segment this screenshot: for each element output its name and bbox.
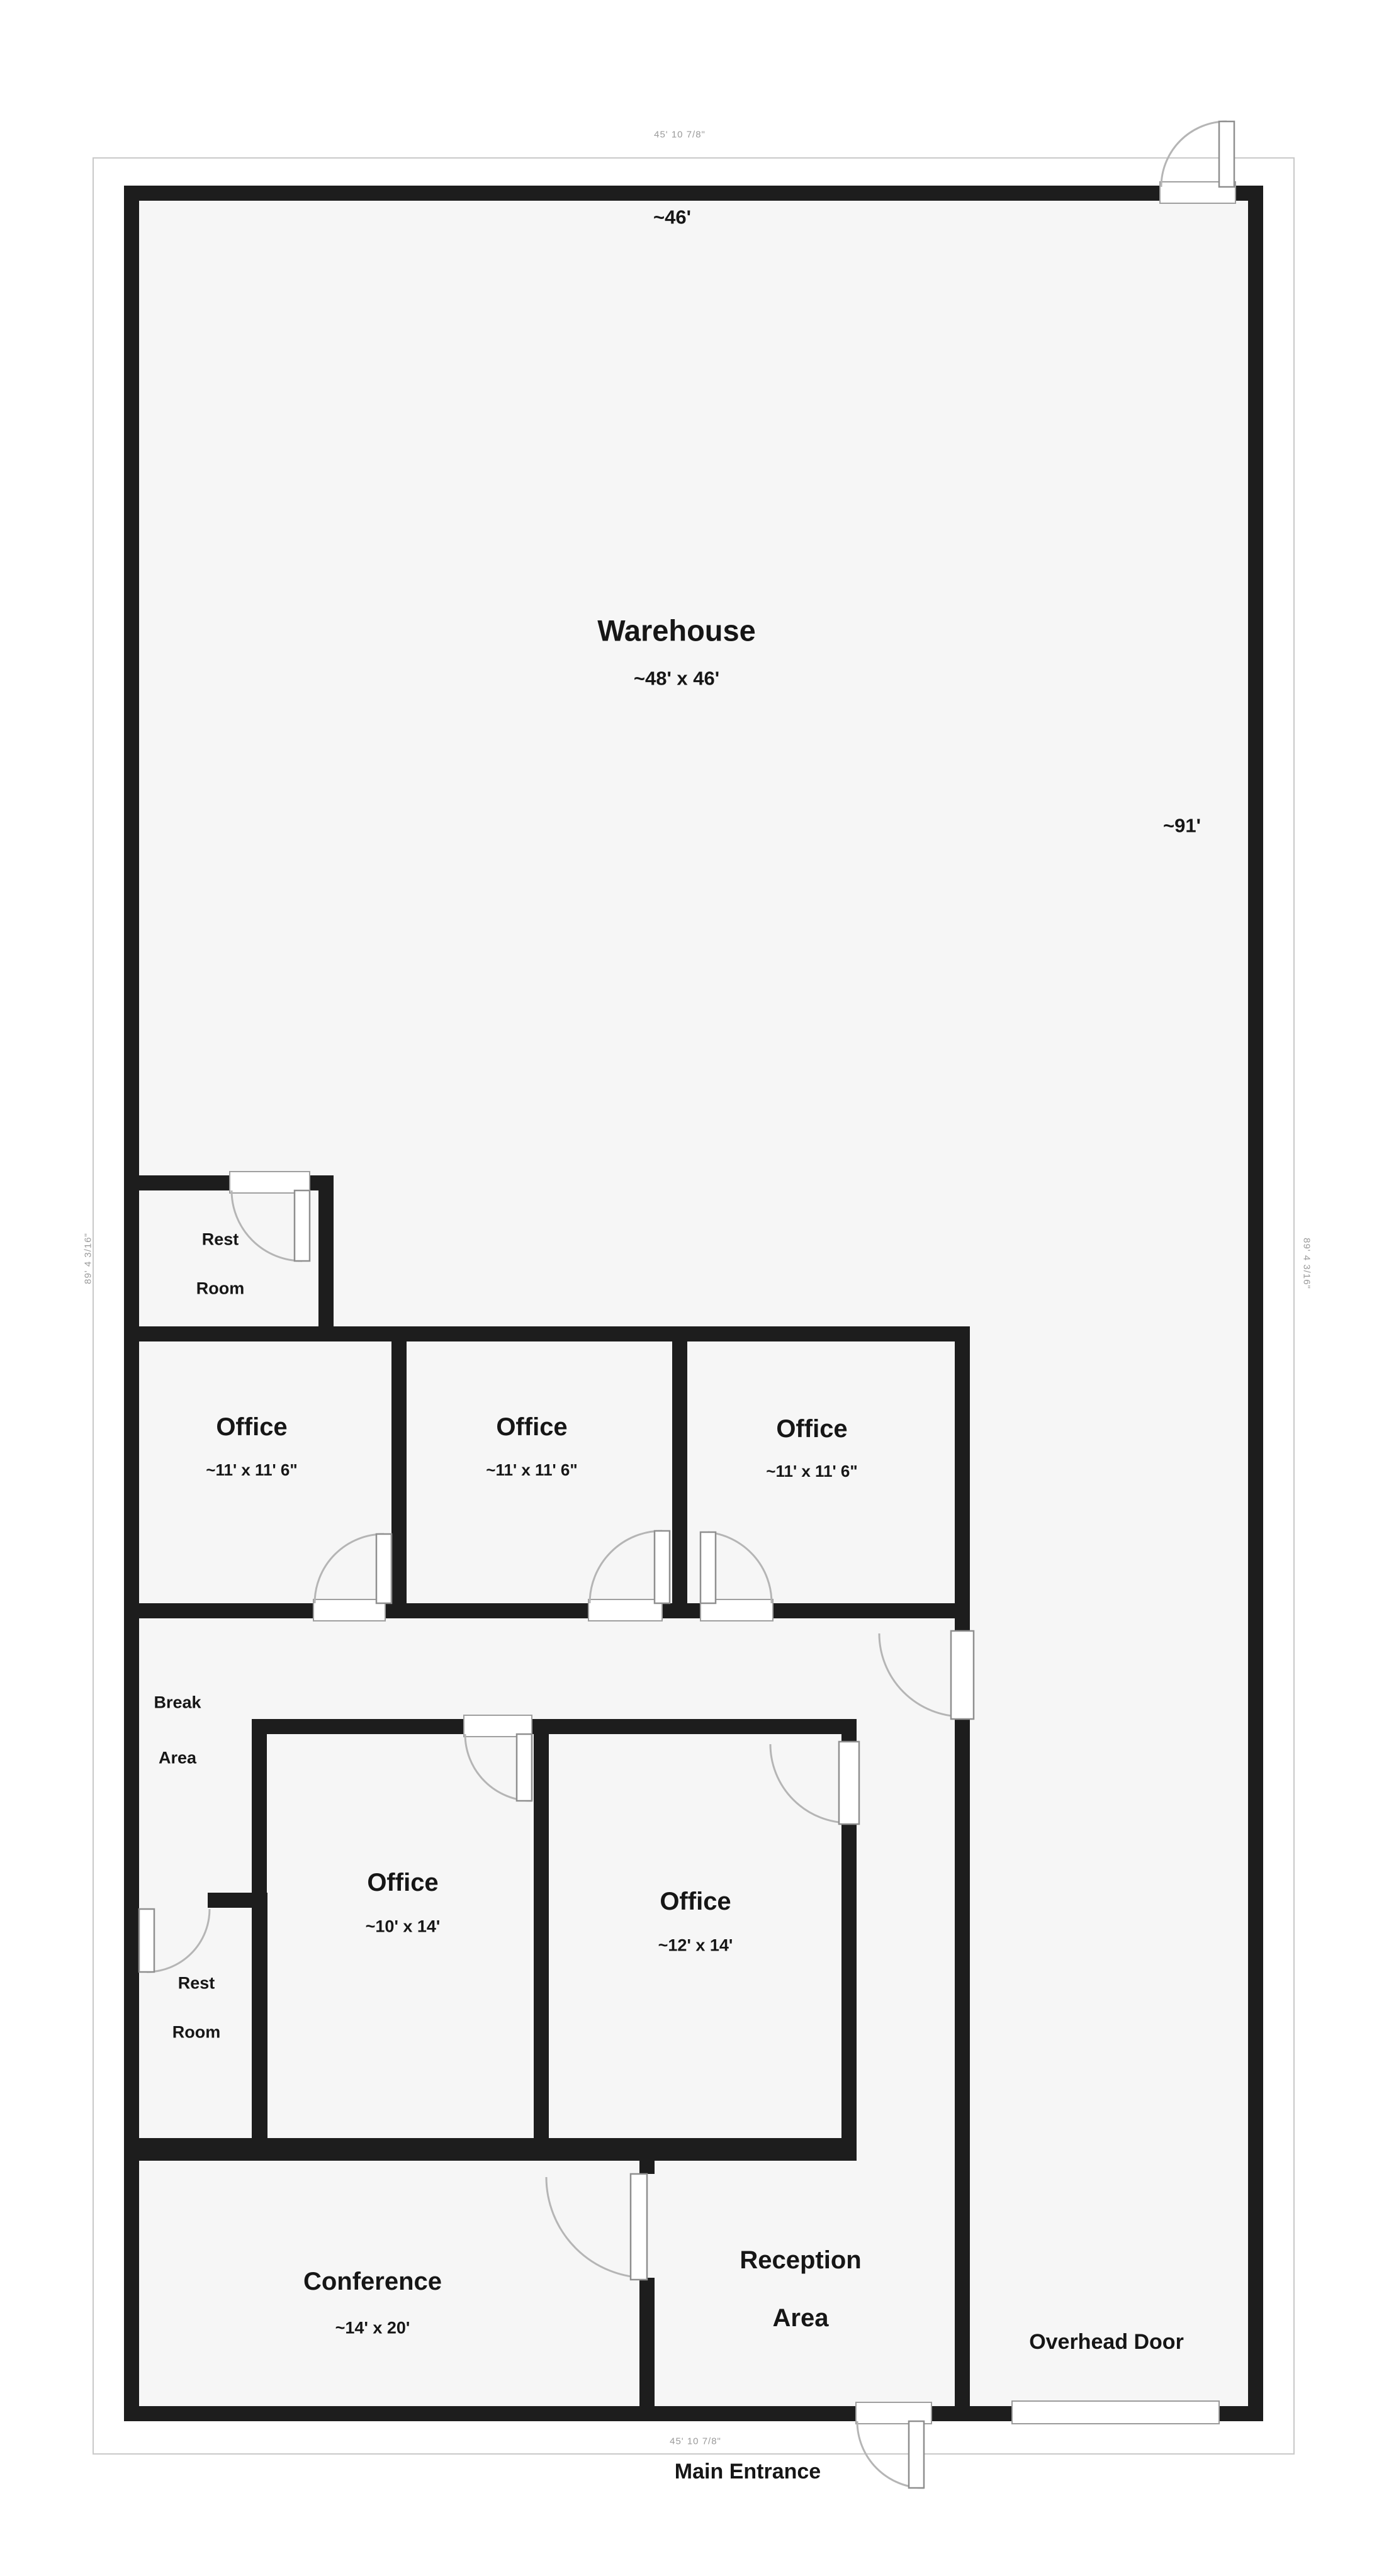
outer-wall-bottom-right-segment [1219, 2406, 1263, 2421]
lower-restroom-label-line1: Rest [178, 1975, 215, 1992]
exterior-width-dim-top: 45' 10 7/8" [654, 130, 706, 140]
main-entrance-label: Main Entrance [675, 2461, 821, 2482]
floor-plan: Warehouse ~48' x 46' ~46' ~91' Office ~1… [0, 0, 1384, 2576]
office-row-bottom-wall-b [385, 1603, 588, 1618]
outer-wall-left [124, 186, 139, 2421]
office-10x14-dims: ~10' x 14' [366, 1918, 441, 1935]
exterior-height-dim-left: 89' 4 3/16" [84, 1233, 93, 1284]
conference-divider-stub [639, 2161, 655, 2174]
upper-restroom-label-line2: Room [196, 1280, 245, 1297]
conference-label: Conference [303, 2269, 442, 2294]
office2-dims: ~11' x 11' 6" [486, 1462, 577, 1478]
office1-dims: ~11' x 11' 6" [206, 1462, 297, 1478]
office-block-top-wall-b [532, 1719, 857, 1734]
office-row-top-wall [124, 1326, 970, 1341]
office2-label: Office [496, 1414, 567, 1440]
break-area-label-line1: Break [154, 1694, 201, 1711]
upper-restroom-top-wall-a [124, 1175, 230, 1190]
interior-width-dim: ~46' [653, 208, 691, 227]
lower-restroom-top-wall [208, 1893, 267, 1908]
reception-label-line2: Area [773, 2305, 829, 2331]
conference-divider-lower [639, 2278, 655, 2406]
outer-wall-bottom-mid-segment [931, 2406, 1012, 2421]
office-row-bottom-wall-d [773, 1603, 970, 1618]
upper-restroom-label-line1: Rest [202, 1231, 239, 1248]
bottom-section-top-wall [124, 2138, 857, 2161]
warehouse-label: Warehouse [597, 616, 756, 646]
office-10x14-label: Office [367, 1870, 438, 1895]
outer-wall-right [1248, 186, 1263, 2421]
office-block-right-wall-b [841, 1822, 857, 2161]
office-12x14-label: Office [660, 1889, 731, 1914]
office1-label: Office [216, 1414, 287, 1440]
office-block-top-wall-a [252, 1719, 464, 1734]
conference-dims: ~14' x 20' [335, 2320, 410, 2337]
lower-restroom-right-wall [252, 1908, 267, 2138]
break-area-label-line2: Area [159, 1750, 196, 1767]
interior-height-dim: ~91' [1163, 816, 1201, 836]
overhead-door-label: Overhead Door [1029, 2331, 1184, 2353]
warehouse-dims: ~48' x 46' [634, 669, 719, 688]
exterior-width-dim-bottom: 45' 10 7/8" [670, 2437, 721, 2446]
exterior-height-dim-right: 89' 4 3/16" [1302, 1238, 1312, 1289]
office-block-right-wall-a [841, 1719, 857, 1743]
long-wall-upper [955, 1326, 970, 1633]
office3-dims: ~11' x 11' 6" [766, 1463, 857, 1479]
upper-restroom-right-wall [318, 1175, 334, 1341]
office-divider-1 [391, 1341, 407, 1603]
office-row-bottom-wall-c [662, 1603, 700, 1618]
office-block-divider [534, 1734, 549, 2161]
lower-restroom-label-line2: Room [172, 2024, 221, 2041]
office-row-bottom-wall-a [124, 1603, 313, 1618]
long-wall-lower [955, 1716, 970, 2406]
office-divider-2 [672, 1341, 687, 1603]
office3-label: Office [776, 1416, 847, 1442]
outer-wall-top-left-segment [124, 186, 1160, 201]
office-12x14-dims: ~12' x 14' [658, 1937, 733, 1954]
outer-wall-bottom-left-segment [124, 2406, 856, 2421]
exterior-face-outline [93, 157, 1295, 2455]
reception-label-line1: Reception [740, 2248, 861, 2273]
